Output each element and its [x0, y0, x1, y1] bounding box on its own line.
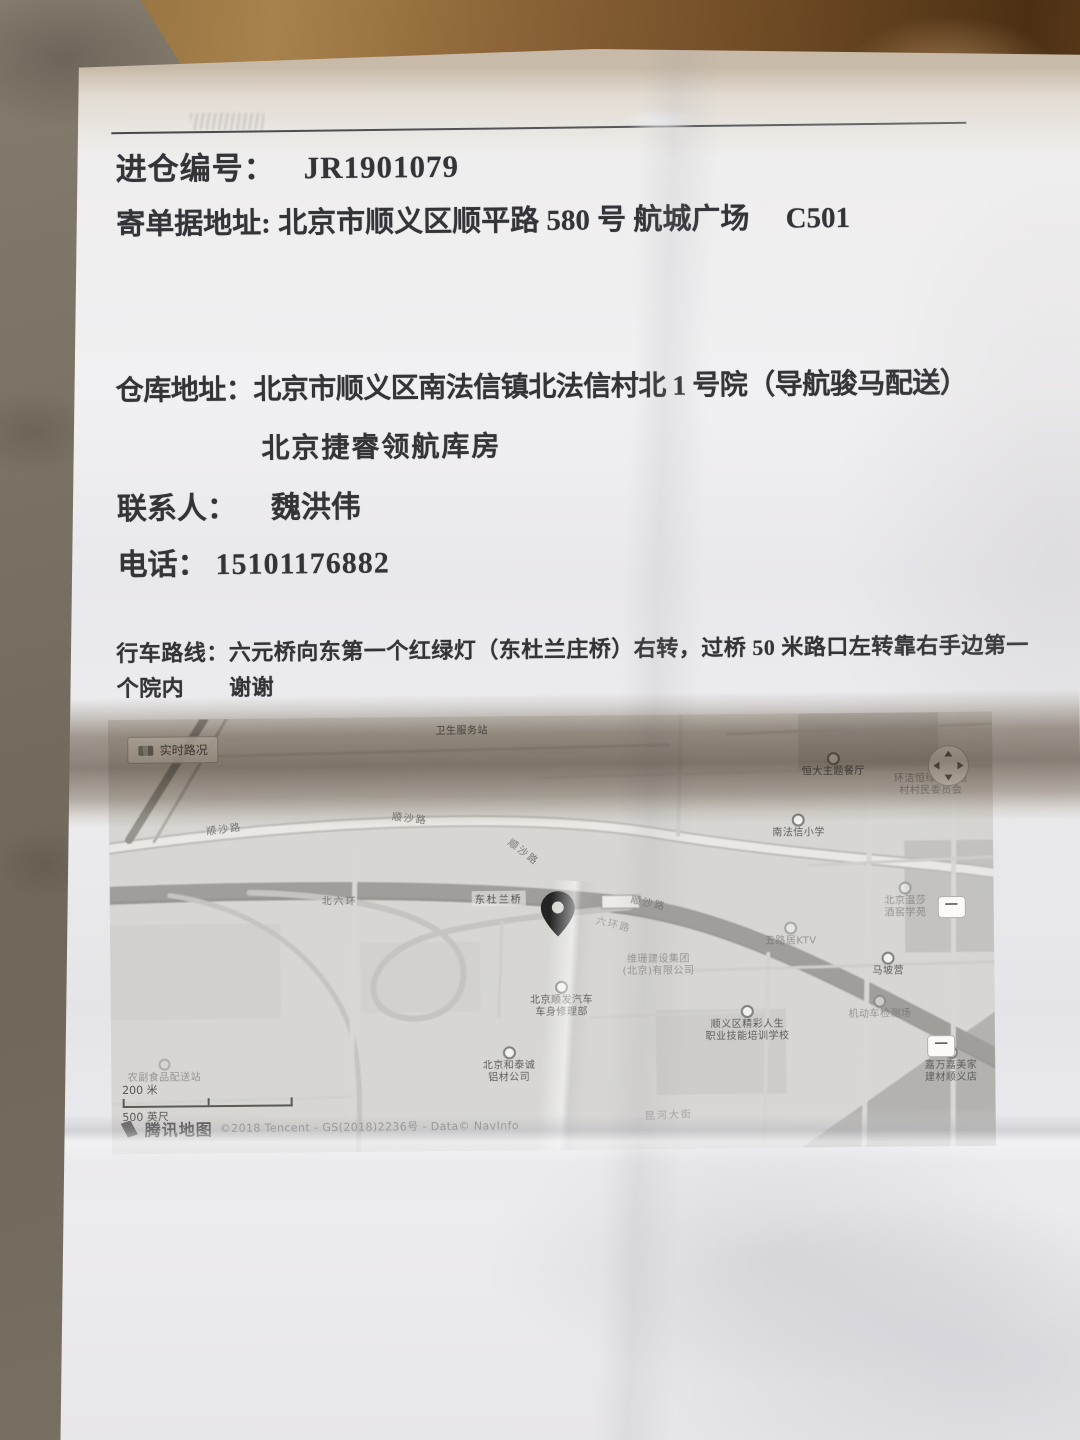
poi-label-text: 卫生服务站	[435, 725, 488, 738]
traffic-signal-icon	[139, 746, 154, 756]
warehouse-name-value: 北京捷睿领航库房	[261, 431, 501, 464]
contact-line: 联系人：魏洪伟	[117, 482, 361, 528]
paper-document: 进仓编号：JR1901079 寄单据地址: 北京市顺义区顺平路 580 号 航城…	[0, 0, 1080, 1440]
tape-glare	[624, 108, 698, 133]
phone-line: 电话：15101176882	[117, 537, 390, 584]
contact-label: 联系人：	[117, 492, 237, 526]
poi-label-text: 维珊建设集团	[622, 953, 694, 966]
poi-label-text: 六环路	[595, 916, 633, 935]
poi-label-text: 建材顺义店	[925, 1072, 978, 1085]
poi-label-text: 南法信小学	[772, 827, 825, 840]
poi-label-text: 东杜兰桥	[475, 895, 523, 906]
poi-marker-icon	[792, 813, 805, 826]
poi-label-text: 北京和泰诚	[483, 1060, 536, 1073]
map: 卫生服务站顺沙路顺沙路顺沙路顺沙路北六环东杜兰桥六环路恒大主题餐厅环洁恒绿化苗圃…	[108, 712, 996, 1154]
map-road-label: 东杜兰桥	[472, 891, 526, 907]
phone-label: 电话：	[117, 548, 207, 582]
map-poi: 维珊建设集团(北京)有限公司	[622, 953, 694, 978]
poi-label-text: 恒大主题餐厅	[802, 766, 865, 779]
warehouse-name-line: 北京捷睿领航库房	[261, 424, 501, 466]
compass-icon	[925, 743, 971, 789]
route-label: 行车路线：	[116, 640, 229, 666]
map-road-label: 顺沙路	[506, 834, 544, 868]
poi-marker-icon	[741, 1005, 754, 1018]
map-road-label: 顺沙路	[630, 890, 668, 912]
pencil-smudge	[190, 113, 264, 131]
contact-value: 魏洪伟	[271, 491, 361, 525]
mailing-address-line: 寄单据地址: 北京市顺义区顺平路 580 号 航城广场 C501	[116, 194, 850, 243]
poi-marker-icon	[502, 1046, 515, 1059]
map-poi: 南法信小学	[772, 813, 825, 840]
scale-tick	[207, 1099, 209, 1106]
map-poi: 农副食品配送站	[128, 1058, 202, 1085]
scale-bar	[122, 1098, 292, 1109]
scale-metric-label: 200 米	[122, 1081, 292, 1099]
poi-marker-icon	[899, 882, 912, 895]
map-road-label: 六环路	[595, 912, 634, 935]
poi-label-text: 顺沙路	[391, 812, 428, 827]
poi-label-text: 顺义区精彩人生	[705, 1018, 789, 1031]
phone-value: 15101176882	[215, 546, 390, 581]
poi-marker-icon	[873, 995, 886, 1008]
poi-label-text: 机动车检测场	[848, 1009, 911, 1022]
map-poi: 五路居KTV	[765, 922, 817, 948]
poi-label-text: 五路居KTV	[765, 936, 817, 948]
entry-number-line: 进仓编号：JR1901079	[115, 141, 459, 189]
mailing-address-value: 北京市顺义区顺平路 580 号 航城广场 C501	[278, 202, 850, 239]
document-text-block: 进仓编号：JR1901079 寄单据地址: 北京市顺义区顺平路 580 号 航城…	[0, 0, 1080, 1440]
poi-marker-icon	[158, 1058, 170, 1070]
road-shield: 一	[927, 1035, 955, 1057]
map-road-label: 顺沙路	[391, 808, 428, 827]
poi-label-text: 职业技能培训学校	[705, 1030, 789, 1043]
traffic-toggle: 实时路况	[128, 736, 219, 764]
poi-label-text: 铝材公司	[483, 1072, 536, 1085]
map-bottom-fade	[112, 1107, 996, 1155]
poi-label-text: 马坡营	[873, 965, 905, 977]
poi-label-text: (北京)有限公司	[623, 965, 695, 978]
photo-scene: 进仓编号：JR1901079 寄单据地址: 北京市顺义区顺平路 580 号 航城…	[0, 0, 1080, 1440]
poi-label-text: 北六环	[321, 897, 357, 908]
mailing-address-label: 寄单据地址:	[116, 208, 271, 241]
route-directions-line: 行车路线：六元桥向东第一个红绿灯（东杜兰庄桥）右转，过桥 50 米路口左转靠右手…	[116, 627, 1029, 706]
map-poi: 北京和泰诚铝材公司	[483, 1046, 536, 1085]
warehouse-address-label: 仓库地址：	[116, 375, 254, 407]
map-poi: 恒大主题餐厅	[802, 752, 865, 779]
map-poi: 北京温莎酒窖学苑	[884, 882, 926, 920]
poi-label-text: 北京温莎	[884, 896, 926, 908]
poi-marker-icon	[784, 922, 797, 935]
poi-label-text: 嘉万嘉美家	[925, 1060, 978, 1073]
map-road-label: 顺沙路	[205, 818, 243, 838]
warehouse-address-value: 北京市顺义区南法信镇北法信村北 1 号院（导航骏马配送）	[253, 368, 967, 406]
poi-marker-icon	[882, 951, 895, 964]
entry-number-value: JR1901079	[304, 149, 460, 185]
traffic-toggle-label: 实时路况	[160, 742, 208, 759]
poi-label-text: 顺沙路	[630, 894, 668, 913]
map-road-label: 北六环	[321, 893, 357, 908]
entry-number-label: 进仓编号：	[116, 151, 276, 188]
poi-marker-icon	[827, 752, 840, 765]
road-shield: 一	[937, 896, 965, 918]
map-poi: 马坡营	[872, 951, 904, 977]
map-poi: 机动车检测场	[848, 995, 911, 1022]
map-poi: 顺义区精彩人生职业技能培训学校	[705, 1004, 789, 1043]
route-text-1: 六元桥向东第一个红绿灯（东杜兰庄桥）右转，过桥 50 米路口左转靠右手边第一	[229, 632, 1029, 665]
road-shield-label: 一	[935, 1037, 948, 1052]
poi-label-text: 顺沙路	[506, 837, 541, 868]
road-shield-label: 一	[945, 898, 958, 913]
warehouse-address-line: 仓库地址：北京市顺义区南法信镇北法信村北 1 号院（导航骏马配送）	[116, 361, 968, 409]
route-text-2: 个院内 谢谢	[117, 675, 275, 702]
map-pan-control	[925, 743, 971, 794]
map-poi: 卫生服务站	[435, 725, 488, 738]
poi-label-text: 酒窖学苑	[884, 908, 926, 920]
poi-label-text: 顺沙路	[206, 822, 243, 838]
